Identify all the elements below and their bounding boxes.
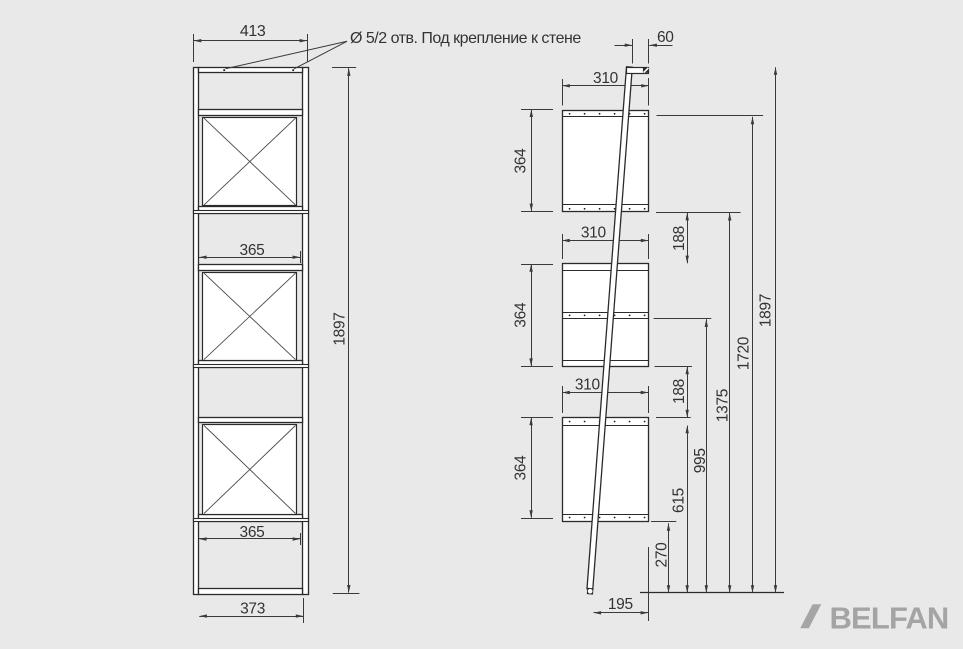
- svg-text:364: 364: [512, 455, 529, 481]
- svg-text:615: 615: [670, 488, 687, 513]
- svg-text:413: 413: [240, 23, 266, 40]
- svg-text:BELFAN: BELFAN: [830, 600, 949, 635]
- svg-text:373: 373: [240, 600, 265, 617]
- svg-text:310: 310: [593, 70, 619, 87]
- svg-text:60: 60: [657, 29, 674, 46]
- svg-text:270: 270: [653, 542, 670, 568]
- svg-text:188: 188: [671, 226, 688, 251]
- svg-text:188: 188: [671, 379, 688, 404]
- svg-text:364: 364: [512, 302, 529, 328]
- svg-text:1720: 1720: [736, 336, 753, 370]
- svg-text:365: 365: [240, 242, 265, 259]
- svg-text:1375: 1375: [714, 389, 731, 422]
- svg-text:364: 364: [512, 148, 529, 174]
- svg-text:995: 995: [692, 448, 709, 473]
- svg-text:310: 310: [581, 224, 607, 241]
- svg-text:1897: 1897: [332, 312, 349, 345]
- svg-text:310: 310: [575, 377, 601, 394]
- svg-text:365: 365: [240, 524, 265, 541]
- svg-text:1897: 1897: [758, 294, 775, 327]
- svg-text:Ø 5/2 отв. Под крепление к сте: Ø 5/2 отв. Под крепление к стене: [350, 30, 581, 47]
- svg-text:195: 195: [608, 596, 633, 613]
